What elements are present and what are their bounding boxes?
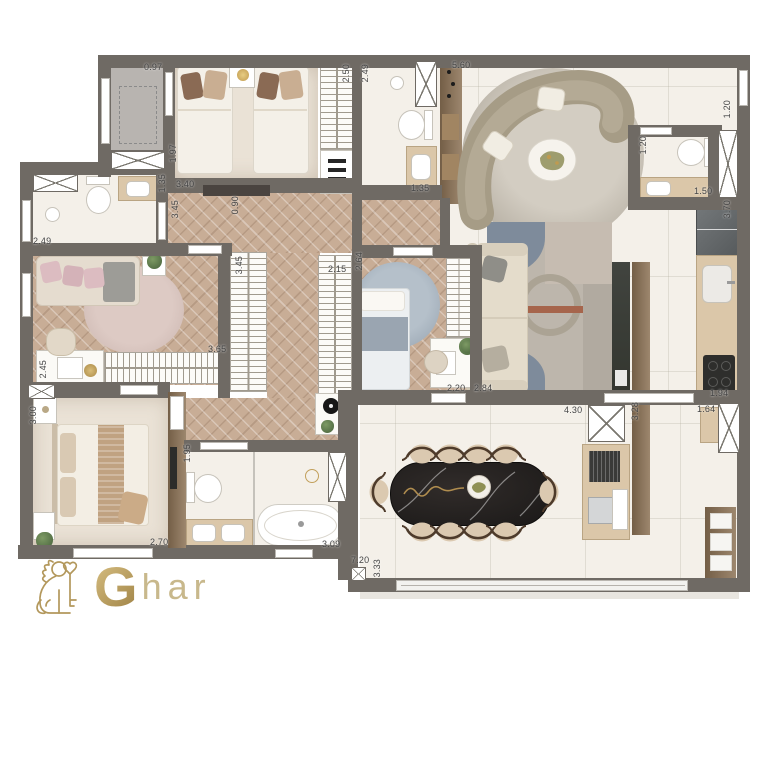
dimension-label: 3.45 bbox=[170, 200, 180, 218]
toilet-tank bbox=[86, 176, 110, 185]
refrigerator bbox=[696, 205, 741, 256]
dimension-label: 1.95 bbox=[182, 444, 192, 462]
dimension-label: 3.40 bbox=[176, 179, 194, 189]
wall-smallbed-right bbox=[470, 245, 482, 395]
toilet-bowl bbox=[398, 110, 425, 140]
service-door-panel bbox=[612, 489, 628, 530]
terrace-glass-door bbox=[396, 580, 688, 591]
door-opening bbox=[165, 72, 173, 116]
door-opening bbox=[604, 393, 694, 403]
twin-bed-right bbox=[253, 66, 309, 174]
toilet-bowl bbox=[86, 186, 111, 214]
window bbox=[22, 273, 31, 317]
blanket bbox=[357, 317, 408, 351]
door-opening bbox=[640, 127, 672, 135]
burner bbox=[721, 377, 731, 387]
duct-shaft bbox=[718, 130, 738, 198]
dimension-label: 2.64 bbox=[354, 252, 364, 270]
daybed-sofa bbox=[36, 256, 140, 306]
door-opening bbox=[200, 442, 248, 450]
dimension-label: 4.30 bbox=[564, 405, 582, 415]
blanket-fold bbox=[178, 109, 231, 111]
door-opening bbox=[393, 247, 433, 256]
media-wood-panel bbox=[632, 262, 650, 392]
dimension-label: 3.00 bbox=[28, 406, 38, 424]
dining-table bbox=[390, 462, 550, 526]
linen-shelf bbox=[705, 507, 736, 578]
duct-shaft bbox=[328, 452, 347, 502]
terrace-edge bbox=[360, 592, 739, 599]
closet-rail bbox=[104, 352, 228, 384]
dimension-label: 2.49 bbox=[33, 236, 51, 246]
bedroom-tv bbox=[170, 447, 177, 489]
fridge-door-line bbox=[697, 229, 740, 230]
brand-logo: G har bbox=[26, 552, 212, 622]
burner bbox=[708, 361, 718, 371]
decor-dot bbox=[42, 406, 49, 413]
dimension-label: 3.28 bbox=[630, 402, 640, 420]
glass-line bbox=[401, 585, 685, 586]
sink-basin bbox=[192, 524, 216, 542]
mattress bbox=[103, 262, 135, 302]
wall-central-vertical bbox=[352, 60, 362, 395]
service-sink bbox=[588, 497, 613, 524]
sofa-armrest bbox=[476, 243, 528, 256]
dimension-label: 1.50 bbox=[694, 186, 712, 196]
dimension-label: 1.35 bbox=[411, 183, 429, 193]
dimension-label: 2.84 bbox=[474, 383, 492, 393]
kitchen-sink bbox=[702, 265, 732, 303]
storage-provision-dashed bbox=[119, 86, 157, 144]
dimension-label: 1.97 bbox=[168, 144, 178, 162]
dimension-label: 2.70 bbox=[150, 537, 168, 547]
sink-basin bbox=[646, 181, 671, 196]
door-opening bbox=[170, 396, 184, 430]
burner bbox=[708, 377, 718, 387]
master-bed bbox=[57, 424, 149, 526]
window bbox=[22, 200, 31, 242]
door-opening bbox=[188, 245, 222, 254]
dimension-label: 1.64 bbox=[697, 404, 715, 414]
toilet-bowl bbox=[194, 474, 222, 503]
sink-basin bbox=[126, 181, 150, 197]
dimension-label: 1.35 bbox=[157, 174, 167, 192]
pillow bbox=[360, 291, 405, 311]
soundbar bbox=[615, 370, 627, 386]
duct-shaft bbox=[28, 384, 55, 399]
dimension-label: 3.09 bbox=[322, 539, 340, 549]
dimension-label: 5.60 bbox=[452, 60, 470, 70]
logo-text-g: G bbox=[94, 559, 138, 615]
floor-plan: 0.972.502.495.601.201.201.503.701.971.35… bbox=[0, 0, 768, 768]
window bbox=[739, 70, 748, 106]
sliding-door bbox=[203, 185, 270, 196]
wall-below-entry bbox=[440, 198, 450, 250]
duct-shaft bbox=[351, 567, 366, 581]
dimension-label: 0.97 bbox=[144, 62, 162, 72]
door-handle-dot bbox=[447, 70, 451, 74]
duct-shaft bbox=[588, 405, 625, 442]
small-bedroom-wardrobe bbox=[446, 258, 472, 338]
dimension-label: 1.20 bbox=[638, 136, 648, 154]
throw-blanket bbox=[117, 491, 149, 526]
dimension-label: 7.20 bbox=[351, 555, 369, 565]
dimension-label: 2.15 bbox=[328, 264, 346, 274]
pillow bbox=[278, 70, 304, 101]
vanity-chair bbox=[46, 328, 76, 356]
dimension-label: 2.20 bbox=[447, 383, 465, 393]
door-opening bbox=[120, 385, 158, 395]
service-wood-cabinet bbox=[632, 402, 650, 535]
dimension-label: 1.94 bbox=[710, 388, 728, 398]
sink-basin bbox=[411, 154, 431, 180]
grill-appliance bbox=[589, 451, 620, 482]
towel-stack bbox=[710, 513, 732, 529]
toilet-bowl bbox=[677, 139, 705, 166]
laptop bbox=[57, 357, 83, 379]
window bbox=[101, 78, 110, 144]
door-handle-dot bbox=[451, 82, 455, 86]
dimension-label: 2.45 bbox=[38, 360, 48, 378]
dimension-label: 2.50 bbox=[341, 64, 351, 82]
pillow bbox=[83, 267, 105, 289]
door-opening bbox=[431, 393, 466, 403]
pillow bbox=[180, 71, 204, 100]
table-lamp bbox=[237, 69, 249, 81]
desk-chair bbox=[424, 350, 448, 374]
pillow bbox=[39, 260, 63, 284]
wall-sitting-right bbox=[218, 250, 230, 398]
rug-shape-circle bbox=[519, 274, 581, 336]
pendant-basin bbox=[390, 76, 404, 90]
dimension-label: 3.33 bbox=[372, 559, 382, 577]
gold-stool bbox=[84, 364, 97, 377]
dimension-label: 0.90 bbox=[230, 196, 240, 214]
door-handle-dot bbox=[447, 94, 451, 98]
entry-shelf bbox=[442, 154, 459, 180]
logo-text-har: har bbox=[142, 566, 212, 608]
living-round-rug bbox=[462, 68, 644, 244]
rug-shape-gray-col bbox=[583, 284, 612, 392]
pillow bbox=[62, 265, 85, 288]
single-bed bbox=[356, 288, 410, 390]
pillow bbox=[202, 70, 228, 101]
corridor-wardrobe-mid bbox=[318, 255, 352, 395]
sofa-cushion-line bbox=[478, 317, 528, 319]
pillow bbox=[60, 433, 76, 473]
towel-stack bbox=[710, 555, 732, 571]
pillow bbox=[256, 71, 280, 100]
dimension-label: 2.49 bbox=[360, 64, 370, 82]
sink-basin bbox=[221, 524, 245, 542]
window bbox=[275, 549, 313, 558]
entry-door-panel bbox=[440, 58, 462, 204]
dimension-label: 3.45 bbox=[234, 256, 244, 274]
tub-drain bbox=[298, 521, 304, 527]
entry-shelf bbox=[442, 114, 459, 140]
dimension-label: 1.20 bbox=[722, 100, 732, 118]
ceiling-light bbox=[45, 207, 60, 222]
faucet bbox=[727, 281, 735, 284]
duct-shaft bbox=[111, 151, 165, 170]
mid-corridor-floor bbox=[267, 253, 320, 398]
towel-stack bbox=[710, 533, 732, 551]
lion-and-key-logo-icon bbox=[26, 552, 92, 622]
duct-shaft bbox=[33, 174, 78, 192]
shower-glass bbox=[253, 452, 255, 548]
twin-bed-left bbox=[177, 66, 233, 174]
duct-shaft bbox=[718, 403, 740, 453]
toilet-tank bbox=[424, 110, 433, 140]
blanket-fold bbox=[254, 109, 307, 111]
wall-right bbox=[737, 60, 750, 592]
shower-drain bbox=[305, 469, 319, 483]
pillow bbox=[60, 477, 76, 517]
door-opening bbox=[158, 202, 166, 240]
dimension-label: 3.70 bbox=[722, 200, 732, 218]
duct-shaft bbox=[415, 61, 437, 107]
record-dot bbox=[329, 404, 333, 408]
burner bbox=[721, 361, 731, 371]
dimension-label: 3.65 bbox=[208, 344, 226, 354]
tv-media-wall bbox=[612, 262, 630, 392]
